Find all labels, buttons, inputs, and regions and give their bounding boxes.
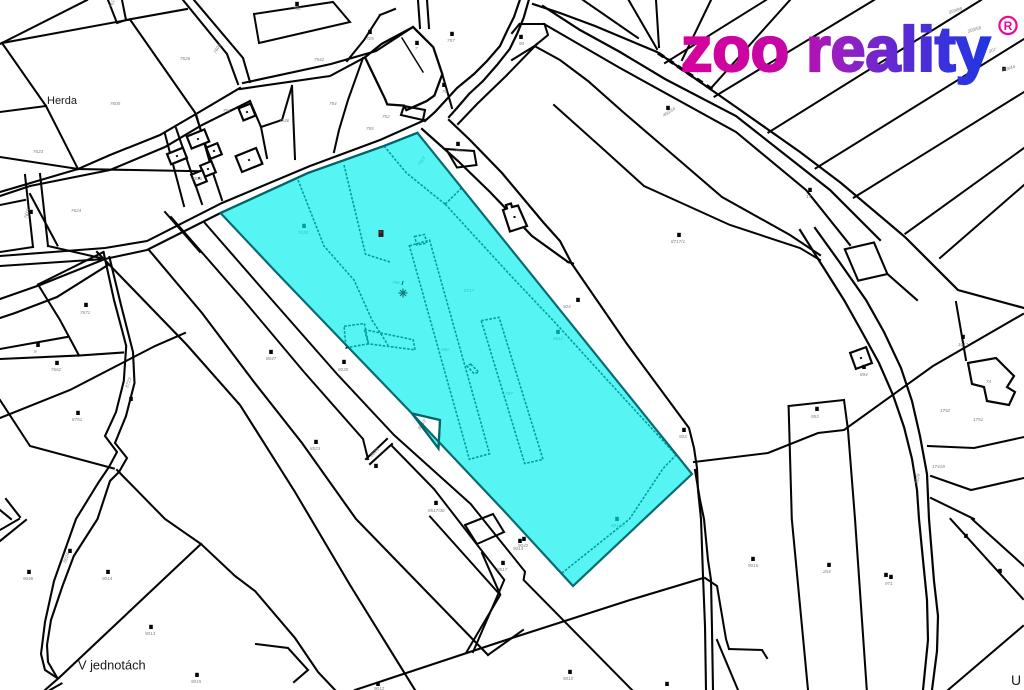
- svg-text:1751: 1751: [973, 417, 984, 422]
- svg-text:9010: 9010: [563, 676, 574, 681]
- svg-text:7542: 7542: [314, 57, 325, 62]
- svg-text:Herda: Herda: [47, 95, 78, 107]
- svg-text:725: 725: [366, 36, 374, 41]
- svg-text:7624: 7624: [71, 208, 82, 213]
- svg-text:7623: 7623: [33, 149, 44, 154]
- svg-text:9042: 9042: [518, 543, 529, 548]
- svg-text:17: 17: [806, 194, 812, 199]
- svg-text:76: 76: [442, 89, 448, 94]
- svg-text:903: 903: [679, 434, 687, 439]
- svg-text:1752: 1752: [940, 408, 951, 413]
- svg-text:7671: 7671: [80, 310, 91, 315]
- svg-text:8523: 8523: [310, 446, 321, 451]
- svg-text:7631: 7631: [192, 176, 203, 181]
- svg-text:90: 90: [519, 41, 525, 46]
- svg-text:757: 757: [447, 38, 455, 43]
- svg-text:748: 748: [293, 6, 301, 11]
- svg-text:8517: 8517: [497, 567, 508, 572]
- svg-text:971: 971: [885, 581, 893, 586]
- svg-text:756: 756: [455, 148, 463, 153]
- svg-text:9: 9: [34, 349, 37, 354]
- svg-text:zoo reality: zoo reality: [681, 15, 991, 85]
- svg-text:74: 74: [986, 379, 992, 384]
- svg-text:8517/36: 8517/36: [428, 508, 445, 513]
- svg-text:204: 204: [822, 569, 831, 574]
- svg-text:1013: 1013: [958, 342, 969, 347]
- svg-text:R: R: [1004, 19, 1013, 33]
- svg-text:9015: 9015: [748, 563, 759, 568]
- svg-text:9014: 9014: [102, 576, 113, 581]
- svg-text:9046: 9046: [23, 576, 34, 581]
- svg-text:7: 7: [415, 46, 418, 51]
- svg-text:752: 752: [382, 114, 390, 119]
- svg-text:9013: 9013: [145, 631, 156, 636]
- svg-text:7662: 7662: [51, 367, 62, 372]
- svg-text:8030: 8030: [338, 367, 349, 372]
- svg-text:755: 755: [366, 126, 374, 131]
- svg-text:8047: 8047: [266, 356, 277, 361]
- svg-text:894: 894: [860, 372, 868, 377]
- svg-text:754: 754: [329, 101, 337, 106]
- svg-text:17418: 17418: [932, 464, 945, 469]
- svg-text:924: 924: [563, 304, 571, 309]
- svg-text:V jednotách: V jednotách: [78, 658, 146, 673]
- svg-text:9012: 9012: [374, 686, 385, 690]
- svg-text:U: U: [1011, 672, 1021, 688]
- svg-text:9015: 9015: [191, 679, 202, 684]
- svg-text:767: 767: [223, 108, 231, 113]
- svg-text:7546: 7546: [279, 118, 290, 123]
- svg-text:7600: 7600: [110, 101, 121, 106]
- svg-text:953: 953: [811, 414, 819, 419]
- svg-text:7626: 7626: [180, 56, 191, 61]
- svg-text:8751: 8751: [72, 417, 83, 422]
- svg-text:8717/1: 8717/1: [671, 239, 685, 244]
